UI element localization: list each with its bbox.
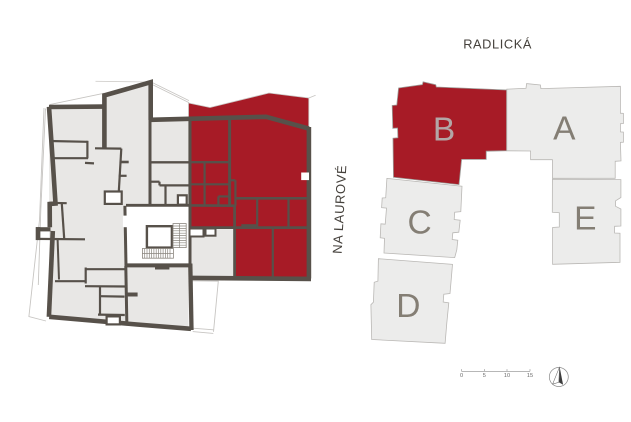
svg-text:E: E [574, 201, 596, 238]
svg-text:C: C [407, 204, 431, 241]
svg-text:RADLICKÁ: RADLICKÁ [463, 37, 532, 52]
svg-text:15: 15 [527, 373, 533, 379]
svg-text:10: 10 [504, 373, 510, 379]
svg-text:B: B [433, 112, 455, 149]
svg-text:5: 5 [483, 373, 486, 379]
svg-text:A: A [553, 111, 576, 148]
svg-text:D: D [396, 288, 420, 325]
svg-text:0: 0 [460, 373, 463, 379]
